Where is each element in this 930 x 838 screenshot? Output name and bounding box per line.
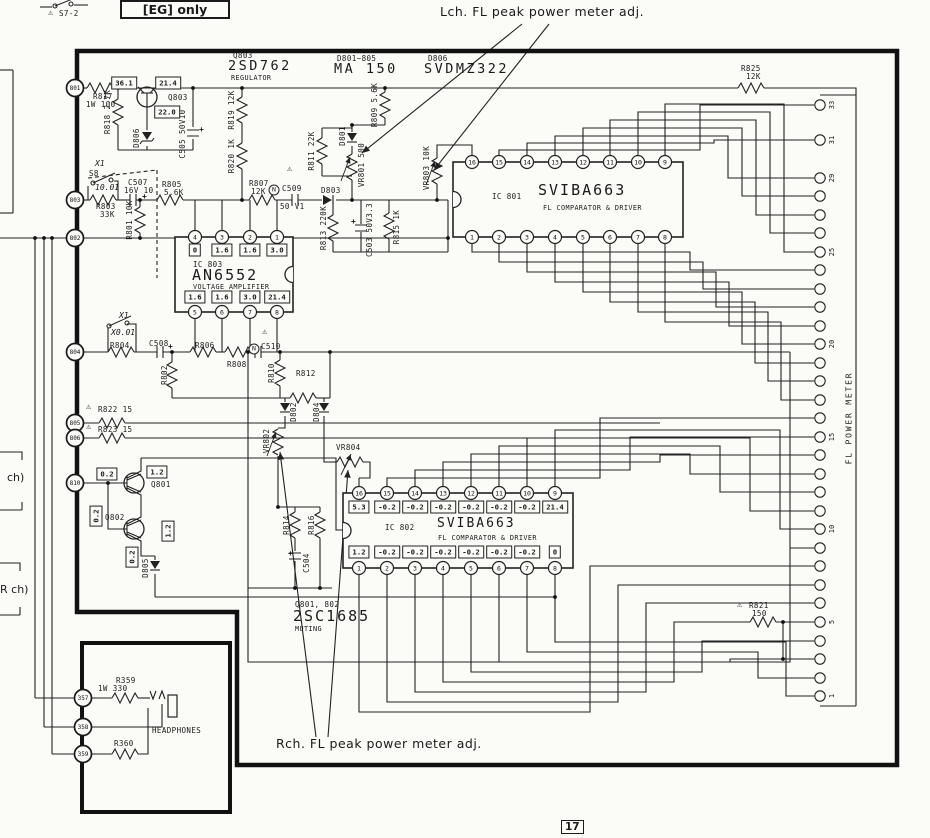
svg-text:1: 1	[470, 233, 474, 241]
svg-text:810: 810	[70, 480, 81, 487]
svg-text:359: 359	[78, 751, 89, 758]
meter-pin-10	[815, 321, 825, 331]
meter-pin-18	[815, 469, 825, 479]
meter-pin-25	[815, 247, 825, 257]
meter-pin-13	[815, 376, 825, 386]
svg-text:358: 358	[78, 724, 89, 731]
svg-text:15: 15	[828, 433, 836, 441]
svg-text:6: 6	[497, 564, 501, 572]
meter-pin-20	[815, 339, 825, 349]
meter-pin-24	[815, 580, 825, 590]
svg-text:1: 1	[828, 694, 836, 698]
ic803-body	[175, 237, 293, 312]
meter-pin-22	[815, 543, 825, 553]
svg-text:3: 3	[525, 233, 529, 241]
svg-text:1: 1	[357, 564, 361, 572]
svg-text:9: 9	[553, 489, 557, 497]
svg-text:5: 5	[193, 308, 197, 316]
svg-text:7: 7	[525, 564, 529, 572]
svg-text:20: 20	[828, 340, 836, 348]
meter-pin-8	[815, 284, 825, 294]
svg-text:4: 4	[441, 564, 445, 572]
meter-pin-12	[815, 358, 825, 368]
svg-text:16: 16	[355, 489, 363, 497]
ic-layer: 4536271816115214313412511610798161152143…	[175, 156, 683, 575]
fl-meter-connector: 3331292520151051	[815, 100, 836, 701]
svg-text:15: 15	[383, 489, 391, 497]
ic802-body	[343, 493, 573, 568]
svg-text:802: 802	[70, 235, 81, 242]
meter-pin-20	[815, 506, 825, 516]
svg-text:4: 4	[193, 233, 197, 241]
svg-text:14: 14	[523, 158, 531, 166]
svg-text:8: 8	[663, 233, 667, 241]
svg-text:805: 805	[70, 420, 81, 427]
meter-pin-3	[815, 191, 825, 201]
svg-text:13: 13	[551, 158, 559, 166]
headphone-jack-icon	[168, 695, 177, 717]
main-border	[77, 51, 897, 765]
svg-text:357: 357	[78, 695, 89, 702]
svg-text:33: 33	[828, 101, 836, 109]
svg-text:3: 3	[413, 564, 417, 572]
svg-text:12: 12	[579, 158, 587, 166]
svg-text:8: 8	[553, 564, 557, 572]
svg-text:8: 8	[275, 308, 279, 316]
meter-pin-23	[815, 561, 825, 571]
schematic-drawing: 4536271816115214313412511610798161152143…	[0, 0, 930, 838]
svg-text:806: 806	[70, 435, 81, 442]
svg-text:804: 804	[70, 349, 81, 356]
meter-pin-14	[815, 395, 825, 405]
meter-pin-4	[815, 210, 825, 220]
svg-text:2: 2	[497, 233, 501, 241]
meter-pin-7	[815, 265, 825, 275]
svg-text:4: 4	[553, 233, 557, 241]
svg-text:7: 7	[248, 308, 252, 316]
meter-pin-29	[815, 673, 825, 683]
meter-pin-28	[815, 654, 825, 664]
meter-pin-15	[815, 413, 825, 423]
svg-text:12: 12	[467, 489, 475, 497]
svg-text:15: 15	[495, 158, 503, 166]
meter-pin-25	[815, 598, 825, 608]
svg-text:2: 2	[248, 233, 252, 241]
svg-text:1: 1	[275, 233, 279, 241]
svg-text:3: 3	[220, 233, 224, 241]
meter-pin-33	[815, 100, 825, 110]
meter-pin-5	[815, 228, 825, 238]
svg-text:801: 801	[70, 85, 81, 92]
svg-text:10: 10	[828, 525, 836, 533]
meter-pin-1	[815, 691, 825, 701]
svg-text:10: 10	[634, 158, 642, 166]
meter-pin-15	[815, 432, 825, 442]
svg-text:14: 14	[411, 489, 419, 497]
meter-pin-19	[815, 487, 825, 497]
meter-pin-10	[815, 524, 825, 534]
svg-text:11: 11	[495, 489, 503, 497]
svg-text:7: 7	[636, 233, 640, 241]
svg-text:5: 5	[469, 564, 473, 572]
svg-text:29: 29	[828, 174, 836, 182]
svg-text:31: 31	[828, 136, 836, 144]
svg-text:16: 16	[468, 158, 476, 166]
meter-pin-27	[815, 636, 825, 646]
schematic-page: 4536271816115214313412511610798161152143…	[0, 0, 930, 838]
meter-pin-31	[815, 135, 825, 145]
meter-pin-5	[815, 617, 825, 627]
svg-text:11: 11	[606, 158, 614, 166]
svg-text:803: 803	[70, 197, 81, 204]
meter-pin-9	[815, 302, 825, 312]
svg-text:9: 9	[663, 158, 667, 166]
svg-text:5: 5	[828, 620, 836, 624]
svg-text:2: 2	[385, 564, 389, 572]
ic801-body	[453, 162, 683, 237]
meter-pin-17	[815, 450, 825, 460]
svg-text:6: 6	[608, 233, 612, 241]
svg-text:13: 13	[439, 489, 447, 497]
svg-text:25: 25	[828, 248, 836, 256]
svg-text:6: 6	[220, 308, 224, 316]
svg-text:10: 10	[523, 489, 531, 497]
svg-text:5: 5	[581, 233, 585, 241]
meter-pin-29	[815, 173, 825, 183]
